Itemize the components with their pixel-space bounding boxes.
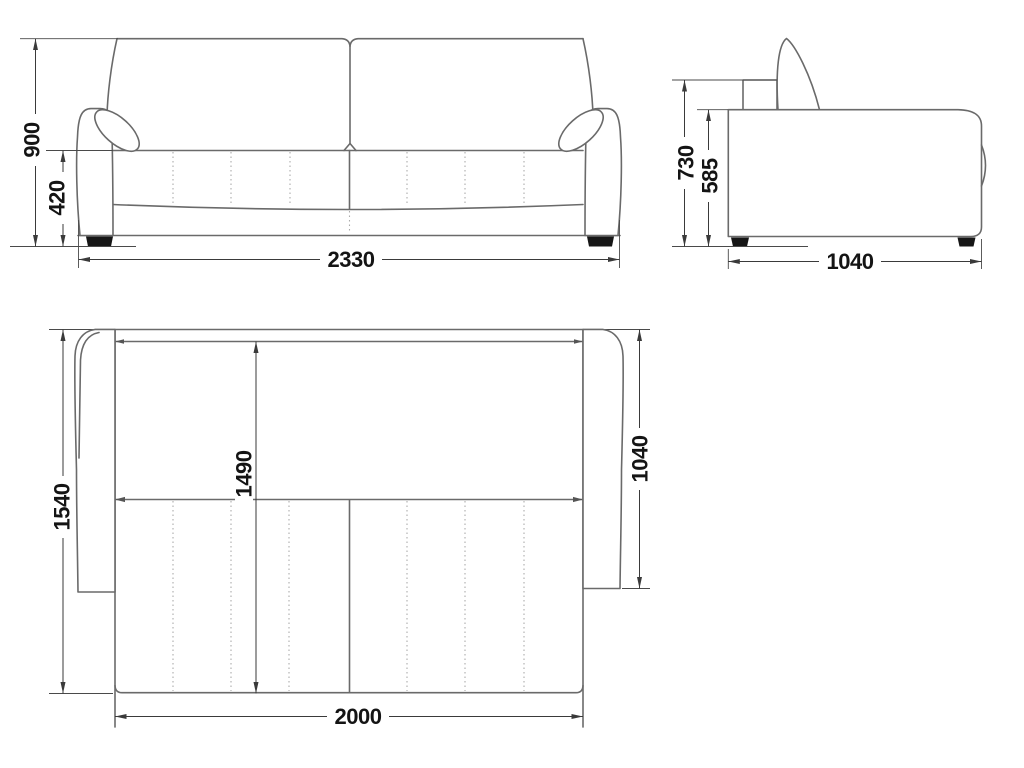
side-back-pillow — [777, 39, 819, 110]
dim-label-585: 585 — [698, 150, 723, 202]
front-rail-curve — [113, 205, 583, 210]
dim-label-900: 900 — [20, 114, 45, 166]
svg-text:2330: 2330 — [328, 247, 375, 272]
svg-text:1490: 1490 — [232, 450, 257, 497]
svg-text:1040: 1040 — [827, 249, 874, 274]
dim-label-2000: 2000 — [327, 704, 389, 729]
backrest-right-edge — [583, 39, 593, 116]
seam-notch — [573, 497, 583, 502]
sofa-dimension-drawing: 900 420 2330 730 — [0, 0, 1024, 768]
svg-text:1040: 1040 — [628, 435, 653, 482]
top-view: 1540 1490 1040 2000 — [49, 330, 653, 730]
dim-label-1040-side: 1040 — [819, 249, 881, 274]
svg-text:420: 420 — [45, 180, 70, 215]
cushion-divider-notch — [344, 144, 356, 151]
sofa-leg — [731, 238, 749, 247]
svg-text:730: 730 — [674, 145, 699, 180]
side-view: 730 585 1040 — [672, 39, 986, 275]
sofa-leg — [958, 238, 976, 247]
svg-text:1540: 1540 — [50, 483, 75, 530]
dim-label-1490: 1490 — [232, 443, 257, 505]
seam-notch — [115, 497, 125, 502]
dim-label-730: 730 — [674, 137, 699, 189]
side-body — [728, 110, 981, 237]
back-deck — [743, 80, 777, 110]
backrest-top-edge — [117, 39, 583, 47]
svg-text:585: 585 — [698, 158, 723, 193]
right-armrest-top — [583, 330, 623, 589]
svg-text:900: 900 — [20, 122, 45, 157]
svg-text:2000: 2000 — [335, 704, 382, 729]
seam-notch — [115, 339, 124, 343]
front-view: 900 420 2330 — [10, 39, 621, 272]
sofa-leg — [86, 237, 113, 247]
seam-notch — [574, 339, 583, 343]
dim-label-420: 420 — [45, 172, 70, 224]
dim-label-2330: 2330 — [320, 247, 382, 272]
dim-label-1040-top: 1040 — [628, 428, 653, 490]
backrest-left-edge — [107, 39, 117, 116]
sofa-leg — [587, 237, 614, 247]
dim-label-1540: 1540 — [50, 476, 75, 538]
drawing-svg: 900 420 2330 730 — [0, 0, 1024, 768]
